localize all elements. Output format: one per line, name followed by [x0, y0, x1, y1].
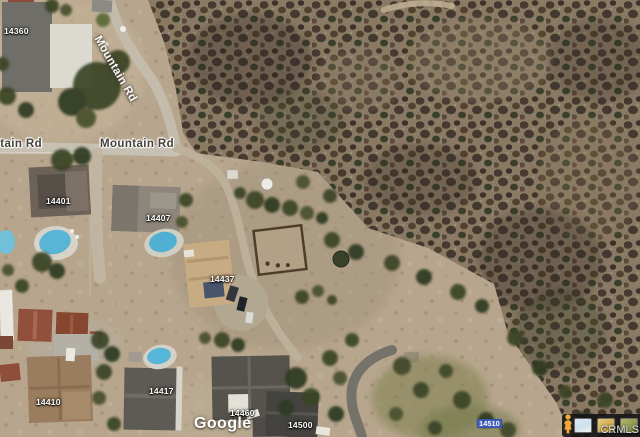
satellite-map[interactable]: Mountain Rd Mountain Rd Mountain Rd 1436… [0, 0, 640, 437]
red-roof-shed [0, 336, 13, 349]
road-label-mountain-rd-center: Mountain Rd [100, 138, 174, 150]
rv-trailer [0, 290, 14, 340]
highlighted-address-marker[interactable]: 14510 [477, 419, 502, 428]
address-label: 14437 [210, 274, 235, 284]
satellite-imagery [0, 0, 640, 437]
house-14407 [111, 185, 181, 233]
data-provider-attribution: CRMLS [600, 424, 639, 436]
house-14410 [27, 355, 93, 423]
white-car [66, 348, 76, 362]
shed [227, 170, 238, 179]
map-style-thumbnail-1[interactable] [574, 418, 592, 433]
address-label: 14360 [4, 26, 29, 36]
round-pen [333, 251, 349, 267]
car-on-road [120, 26, 126, 32]
address-label: 14500 [288, 420, 313, 430]
address-label: 14410 [36, 397, 61, 407]
pegman-icon[interactable] [562, 414, 574, 434]
google-watermark: Google [194, 415, 252, 433]
horse-arena [253, 225, 306, 275]
red-roof-shed [0, 363, 21, 382]
road-label-mountain-rd-west: Mountain Rd [0, 138, 42, 150]
address-label: 14407 [146, 213, 171, 223]
address-label: 14401 [46, 196, 71, 206]
address-label: 14417 [149, 386, 174, 396]
water-tank [261, 178, 273, 190]
house-14401 [29, 164, 92, 217]
